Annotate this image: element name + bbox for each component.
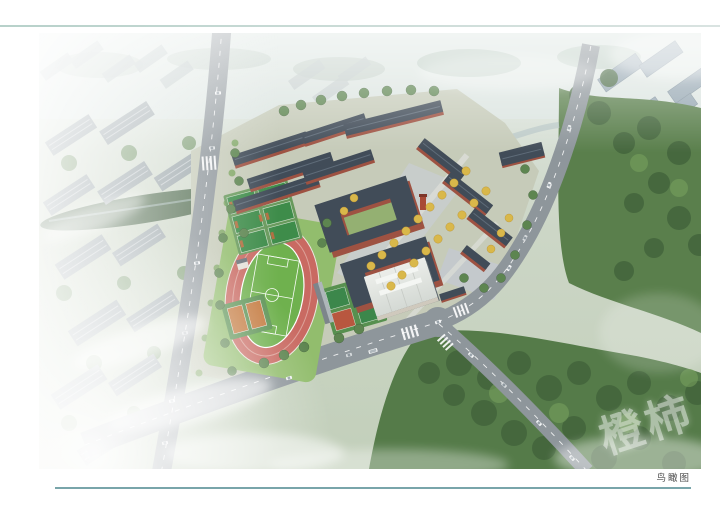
campus-aerial-scene [39, 33, 701, 469]
aerial-rendering-figure: 橙柿 [39, 33, 701, 469]
document-page: 橙柿 鸟瞰图 [0, 0, 720, 509]
top-rule [0, 25, 720, 27]
bottom-rule [55, 487, 691, 489]
figure-caption: 鸟瞰图 [656, 473, 691, 485]
